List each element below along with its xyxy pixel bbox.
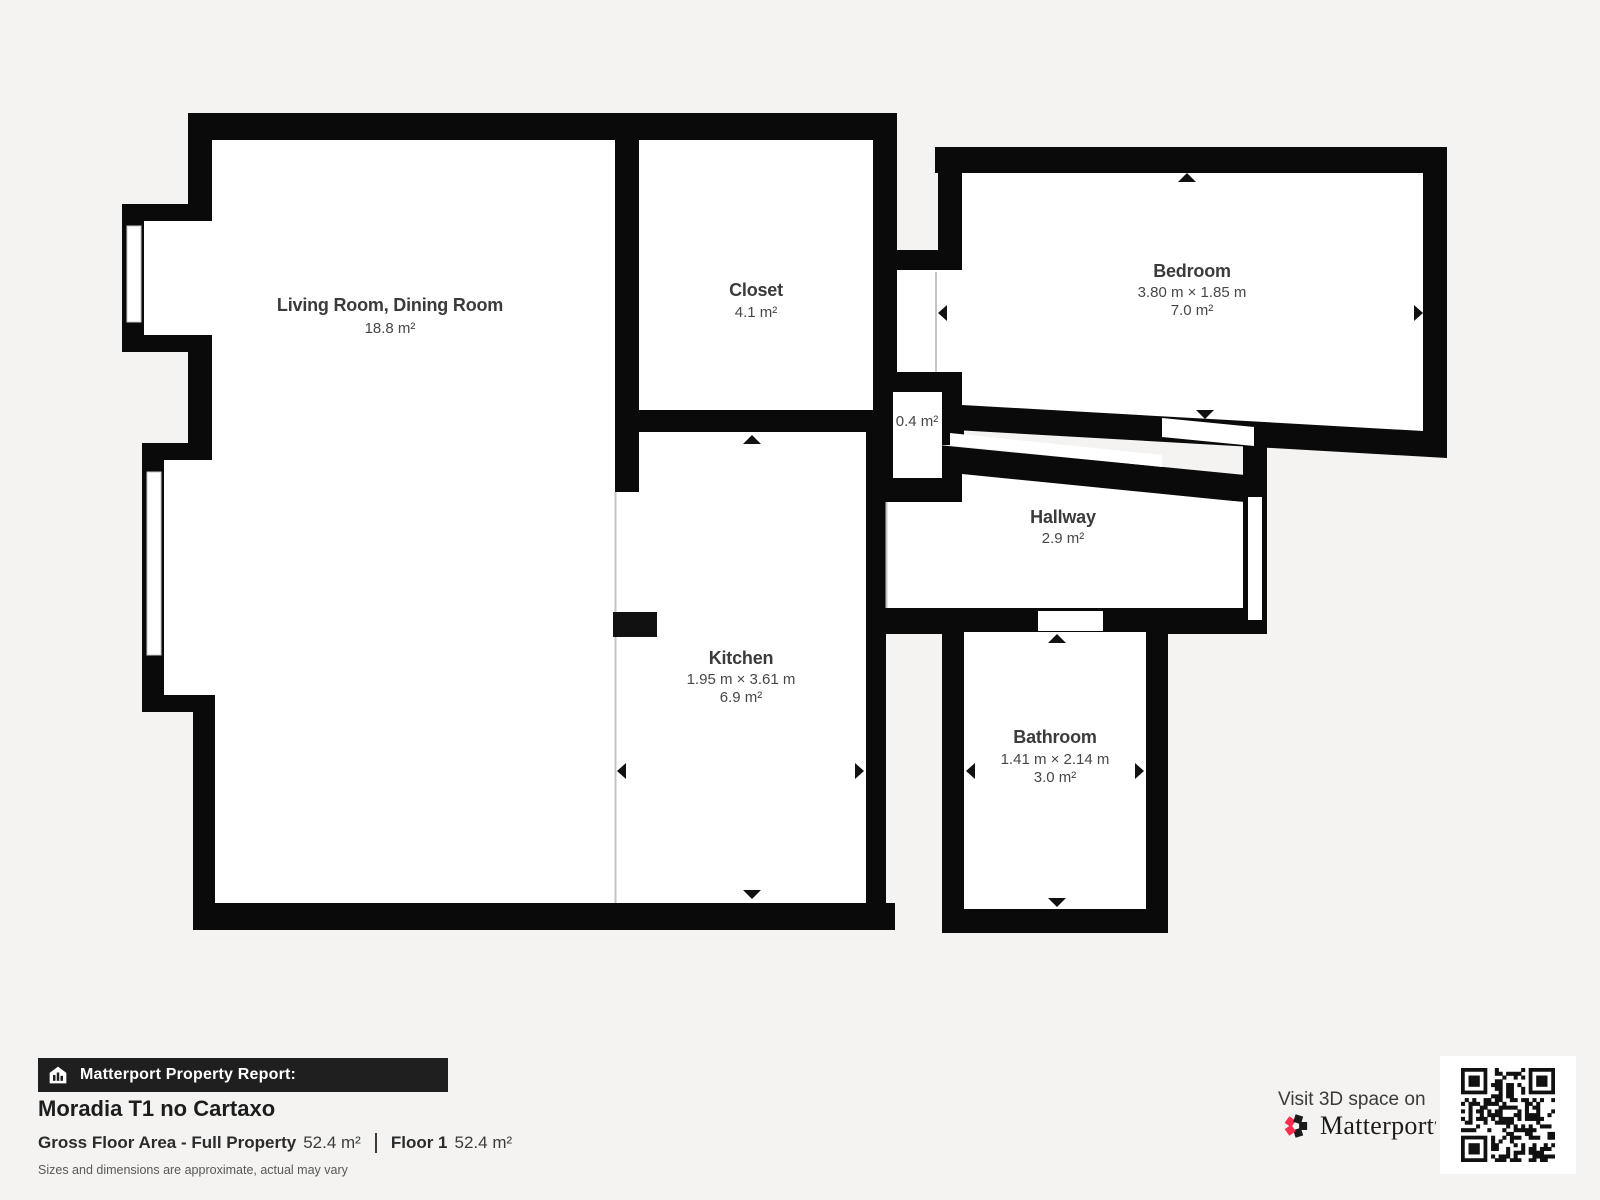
- room-vestibule-floor: [893, 392, 942, 478]
- kitchen-dims: 1.95 m × 3.61 m: [687, 671, 796, 688]
- bathroom-label: Bathroom: [1013, 727, 1096, 747]
- bedroom-pocket-floor: [897, 270, 962, 372]
- kitchen-label: Kitchen: [709, 648, 774, 668]
- bedroom-area: 7.0 m²: [1171, 302, 1214, 319]
- room-closet-floor: [639, 140, 873, 410]
- property-name: Moradia T1 no Cartaxo: [38, 1096, 275, 1122]
- report-bar-label: Matterport Property Report:: [80, 1066, 296, 1084]
- gross-floor-area-label: Gross Floor Area - Full Property: [38, 1133, 296, 1153]
- room-floors: [144, 140, 1423, 909]
- wall-stub: [613, 612, 657, 637]
- hallway-label: Hallway: [1030, 507, 1096, 527]
- bathroom-door-gap: [1038, 611, 1103, 631]
- bathroom-dims: 1.41 m × 2.14 m: [1001, 751, 1110, 768]
- trademark-mark: ′: [1434, 1119, 1436, 1133]
- floor-label: Floor 1: [391, 1133, 448, 1153]
- visit-3d-text: Visit 3D space on: [1278, 1089, 1426, 1111]
- hallway-door: [1248, 497, 1262, 620]
- closet-label: Closet: [729, 280, 783, 300]
- bedroom-dims: 3.80 m × 1.85 m: [1138, 284, 1247, 301]
- living-room-label: Living Room, Dining Room: [277, 295, 503, 315]
- divider: [375, 1133, 377, 1153]
- window: [127, 226, 141, 322]
- floor-plan: Living Room, Dining Room 18.8 m² Closet …: [0, 0, 1600, 1200]
- closet-area: 4.1 m²: [735, 304, 778, 321]
- matterport-wordmark: Matterport: [1320, 1111, 1434, 1141]
- disclaimer-text: Sizes and dimensions are approximate, ac…: [38, 1163, 348, 1177]
- qr-code: [1461, 1068, 1555, 1162]
- matterport-pinwheel-icon: [1280, 1110, 1312, 1142]
- gross-floor-area-value: 52.4 m²: [303, 1133, 361, 1153]
- window: [147, 472, 161, 655]
- area-summary: Gross Floor Area - Full Property 52.4 m²…: [38, 1133, 512, 1153]
- house-chart-icon: [48, 1065, 68, 1085]
- living-room-area: 18.8 m²: [365, 320, 416, 337]
- vestibule-area: 0.4 m²: [896, 413, 939, 430]
- bedroom-label: Bedroom: [1153, 261, 1231, 281]
- kitchen-area: 6.9 m²: [720, 689, 763, 706]
- report-title-bar: Matterport Property Report:: [38, 1058, 448, 1092]
- matterport-logo: Matterport′: [1280, 1110, 1436, 1142]
- floor-value: 52.4 m²: [455, 1133, 513, 1153]
- property-report-page: Living Room, Dining Room 18.8 m² Closet …: [0, 0, 1600, 1200]
- bathroom-area: 3.0 m²: [1034, 769, 1077, 786]
- hallway-area: 2.9 m²: [1042, 530, 1085, 547]
